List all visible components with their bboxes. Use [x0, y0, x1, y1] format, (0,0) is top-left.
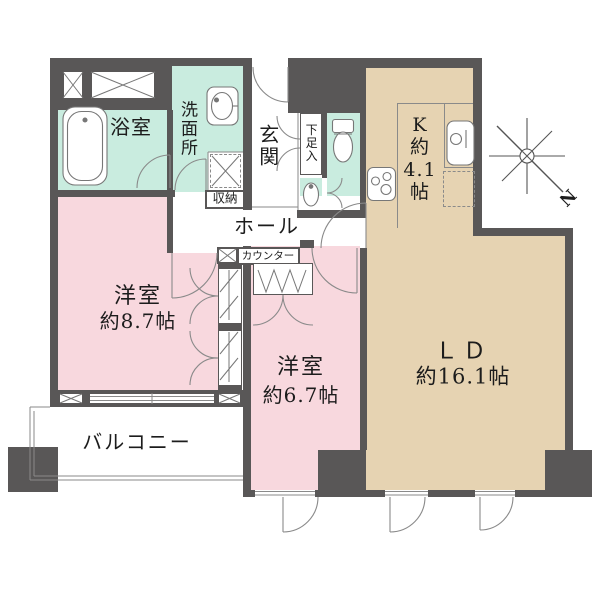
bathtub-icon	[63, 107, 107, 185]
bedroom67-window-sash	[283, 497, 318, 532]
ld-window-sash-1	[390, 497, 425, 532]
bath-door	[137, 155, 170, 188]
washbasin-icon	[207, 87, 238, 125]
entrance-label: 玄関	[255, 124, 279, 168]
bedroom67-size: 約6.7帖	[263, 384, 340, 408]
bathroom-label: 浴室	[110, 116, 152, 140]
closet-lower-doors	[190, 331, 218, 385]
meter-box-large-x	[91, 72, 155, 98]
bedroom67-name: 洋室	[277, 355, 325, 381]
counter-label: カウンター	[242, 250, 295, 262]
living-dining-name: ＬＤ	[435, 338, 491, 365]
kitchen-sink-icon	[447, 121, 474, 165]
shoe-box-label: 下足入	[304, 124, 318, 163]
ld-window-sash-2	[480, 497, 513, 530]
closet-lower-hatch	[220, 332, 238, 382]
hall-label: ホール	[234, 215, 300, 239]
hanger-closet-doors	[253, 295, 313, 325]
sliding-window-lines	[90, 393, 214, 404]
pillar-br-x	[219, 394, 240, 403]
window-glass-lines	[255, 492, 515, 496]
bedroom87-door	[172, 253, 217, 298]
toilet-doors	[327, 178, 342, 208]
hall-ld-door	[321, 203, 366, 248]
compass-north-label: N	[554, 184, 579, 209]
shoe-box-doors	[277, 116, 300, 171]
washroom-door	[175, 159, 206, 190]
closet-upper-doors	[190, 268, 218, 324]
hand-basin-icon	[304, 183, 319, 206]
storage-label: 収納	[212, 192, 237, 207]
toilet-icon	[333, 120, 354, 163]
bedroom87-name: 洋室	[114, 284, 162, 310]
hanger-pipe-symbol	[258, 270, 306, 292]
kitchen-label: K 約 4.1 帖	[403, 114, 436, 204]
closet-upper-hatch	[220, 270, 238, 320]
bedroom87-size: 約8.7帖	[100, 310, 177, 334]
living-dining-size: 約16.1帖	[416, 365, 511, 390]
compass-icon: N	[489, 118, 580, 210]
stove-icon	[368, 168, 396, 201]
floor-plan: N 浴室 洗面所 玄関 下足入 収納 ホール カウンター K 約 4.1 帖 洋…	[0, 0, 600, 600]
pillar-hall-x	[219, 249, 236, 262]
meter-box-small-x	[63, 72, 83, 98]
washroom-label: 洗面所	[177, 101, 197, 158]
pillar-bl-x	[60, 394, 82, 403]
plan-linework: N	[0, 0, 600, 600]
storage-x	[212, 156, 239, 186]
entrance-door	[253, 67, 288, 102]
bedroom67-door	[312, 248, 357, 293]
balcony-label: バルコニー	[82, 431, 192, 455]
